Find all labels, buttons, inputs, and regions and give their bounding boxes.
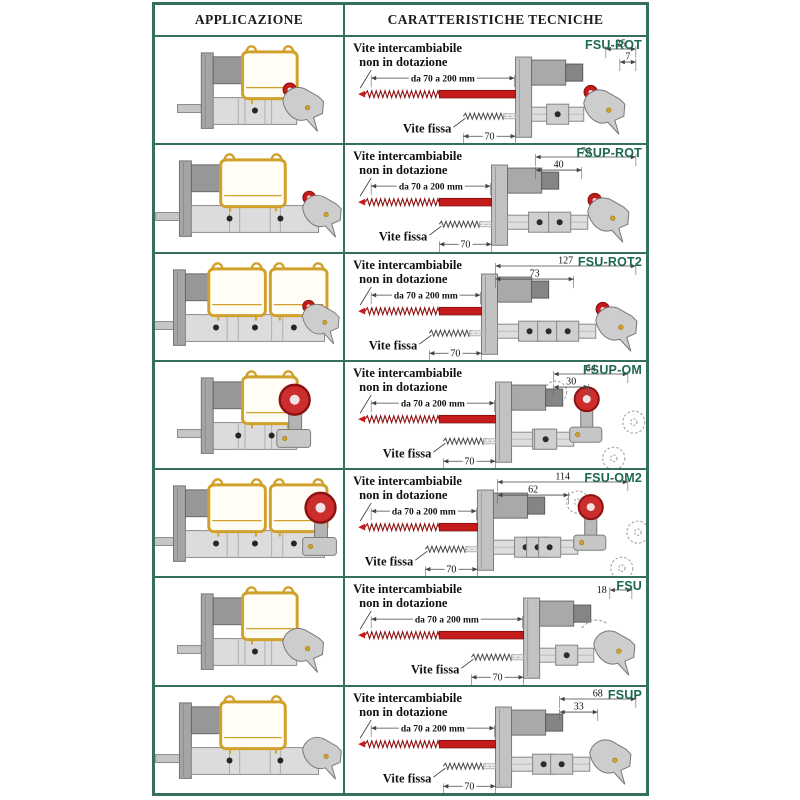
motor-body — [191, 165, 223, 192]
motor-body — [512, 385, 546, 410]
mount-plate — [481, 274, 497, 354]
product-code: FSU-ROT — [585, 38, 642, 52]
bolt — [564, 653, 570, 659]
caratteristiche-header: CARATTERISTICHE TECNICHE — [343, 5, 646, 35]
hook — [590, 740, 631, 784]
rail-profile — [209, 485, 266, 532]
rail-profile — [221, 160, 286, 207]
leader-line — [429, 226, 441, 235]
hook — [584, 90, 625, 134]
leader-line — [419, 335, 431, 344]
actuator-body — [191, 206, 318, 233]
bolt — [227, 216, 233, 222]
technical-cell: FSU-OM2 Vite intercambiabilenon in dotaz… — [343, 470, 646, 576]
interchangeable-screw-shaft — [439, 415, 495, 423]
dimension-label: da 70 a 200 mm — [415, 616, 479, 626]
motor-cap — [566, 64, 583, 81]
mount-plate — [201, 53, 213, 128]
rail-profile — [221, 702, 286, 749]
actuator-body — [191, 747, 318, 774]
application-illustration — [155, 687, 343, 793]
application-illustration — [155, 37, 343, 143]
bolt — [277, 757, 283, 763]
interchangeable-screw-label: non in dotazione — [359, 272, 448, 286]
leader-line — [433, 768, 445, 777]
motor-body — [213, 382, 245, 409]
interchangeable-screw-thread — [365, 199, 440, 206]
dimension-label: 70 — [450, 348, 460, 359]
mount-plate — [201, 594, 213, 669]
product-code: FSU-ROT2 — [578, 255, 642, 269]
hook — [594, 631, 635, 675]
leader-line — [360, 503, 371, 521]
application-cell — [155, 254, 343, 360]
fixed-screw-label: Vite fissa — [369, 338, 418, 352]
technical-cell: FSUP-OM Vite intercambiabilenon in dotaz… — [343, 362, 646, 468]
gear-outline — [603, 447, 625, 468]
mount-plate — [491, 165, 507, 245]
mount-plate — [179, 161, 191, 236]
dimension-label: 40 — [554, 160, 564, 171]
bolt — [557, 219, 563, 225]
dimension-label: 70 — [460, 240, 470, 251]
bolt — [541, 761, 547, 767]
bolt — [291, 324, 297, 330]
hook-assembly — [596, 302, 637, 351]
mount-plate — [179, 703, 191, 778]
screw-shaft — [156, 754, 180, 762]
dimension-label: da 70 a 200 mm — [401, 399, 465, 409]
motor-cap — [546, 714, 563, 731]
fixed-screw-label: Vite fissa — [383, 446, 432, 460]
dimension-label: 127 — [558, 255, 573, 266]
leader-line — [360, 178, 371, 196]
mount-plate — [496, 382, 512, 462]
dimension-label: 70 — [492, 673, 502, 684]
interchangeable-screw-label: Vite intercambiabile — [353, 474, 462, 488]
gear-outline — [627, 521, 646, 543]
fixed-screw-label: Vite fissa — [365, 554, 414, 568]
interchangeable-screw-label: Vite intercambiabile — [353, 41, 462, 55]
applicazione-header: APPLICAZIONE — [155, 5, 343, 35]
mount-plate — [174, 269, 186, 344]
leader-line — [461, 660, 473, 669]
technical-cell: FSUP-ROT Vite intercambiabilenon in dota… — [343, 145, 646, 251]
bolt — [277, 216, 283, 222]
bolt — [543, 436, 549, 442]
interchangeable-screw-shaft — [439, 307, 481, 315]
technical-cell: FSUP Vite intercambiabilenon in dotazion… — [343, 687, 646, 793]
product-code: FSU — [616, 579, 642, 593]
hook-assembly — [590, 740, 631, 784]
dimension-label: 7 — [625, 52, 630, 63]
leader-line — [453, 118, 465, 127]
application-cell — [155, 362, 343, 468]
table-row: FSU Vite intercambiabilenon in dotazione… — [155, 578, 646, 686]
mount-plate — [174, 486, 186, 561]
technical-drawing: Vite intercambiabilenon in dotazioneda 7… — [345, 254, 646, 360]
interchangeable-screw-label: non in dotazione — [359, 380, 448, 394]
dimension-label: 62 — [528, 485, 538, 496]
dimension-label: da 70 a 200 mm — [401, 724, 465, 734]
motor-body — [493, 493, 527, 518]
dimension-label: 68 — [593, 688, 603, 699]
interchangeable-screw-label: Vite intercambiabile — [353, 149, 462, 163]
fixed-screw-label: Vite fissa — [383, 771, 432, 785]
product-code: FSU-OM2 — [584, 471, 642, 485]
dimension-label: 33 — [574, 701, 584, 712]
table-row: FSU-OM2 Vite intercambiabilenon in dotaz… — [155, 470, 646, 578]
bolt — [213, 541, 219, 547]
interchangeable-screw-label: Vite intercambiabile — [353, 366, 462, 380]
bolt — [546, 328, 552, 334]
technical-cell: FSU Vite intercambiabilenon in dotazione… — [343, 578, 646, 684]
motor-body — [508, 168, 542, 193]
motor-body — [512, 710, 546, 735]
fixed-screw-thread — [429, 330, 471, 336]
interchangeable-screw-thread — [365, 524, 440, 531]
fixed-screw-thread — [471, 655, 513, 661]
catalog-page: APPLICAZIONE CARATTERISTICHE TECNICHE FS… — [0, 0, 800, 800]
screw-shaft — [177, 646, 201, 654]
motor-body — [213, 598, 245, 625]
bolt — [252, 108, 258, 114]
gear-outline — [611, 557, 633, 576]
bolt — [252, 541, 258, 547]
bolt — [252, 649, 258, 655]
table-row: FSUP-OM Vite intercambiabilenon in dotaz… — [155, 362, 646, 470]
motor-body — [213, 57, 245, 84]
dimension-label: 70 — [464, 781, 474, 792]
interchangeable-screw-thread — [365, 416, 440, 423]
dimension-label: 70 — [464, 456, 474, 467]
leader-line — [360, 720, 371, 738]
mount-plate — [524, 598, 540, 678]
dimension-label: 70 — [446, 565, 456, 576]
interchangeable-screw-shaft — [439, 632, 523, 640]
technical-cell: FSU-ROT Vite intercambiabilenon in dotaz… — [343, 37, 646, 143]
interchangeable-screw-shaft — [439, 523, 477, 531]
table-row: FSUP-ROT Vite intercambiabilenon in dota… — [155, 145, 646, 253]
interchangeable-screw-label: non in dotazione — [359, 163, 448, 177]
interchangeable-screw-label: Vite intercambiabile — [353, 691, 462, 705]
hook — [588, 198, 629, 242]
table-header: APPLICAZIONE CARATTERISTICHE TECNICHE — [155, 5, 646, 37]
hook — [596, 306, 637, 350]
dimension-label: da 70 a 200 mm — [411, 74, 475, 84]
application-illustration — [155, 362, 343, 468]
product-code: FSUP-ROT — [577, 146, 643, 160]
motor-cap — [574, 605, 591, 622]
dimension-label: 73 — [530, 268, 540, 279]
bolt — [235, 432, 241, 438]
mount-plate — [496, 707, 512, 787]
bolt — [565, 328, 571, 334]
motor-body — [540, 601, 574, 626]
technical-table: APPLICAZIONE CARATTERISTICHE TECNICHE FS… — [152, 2, 649, 796]
interchangeable-screw-label: non in dotazione — [359, 705, 448, 719]
application-cell — [155, 37, 343, 143]
dimension-label: 114 — [555, 472, 570, 483]
leader-line — [360, 287, 371, 305]
interchangeable-screw-label: non in dotazione — [359, 488, 448, 502]
bolt — [559, 761, 565, 767]
motor-cap — [542, 172, 559, 189]
mount-plate — [477, 490, 493, 570]
screw-shaft — [155, 321, 174, 329]
technical-drawing: Vite intercambiabilenon in dotazioneda 7… — [345, 145, 646, 251]
fixed-screw-label: Vite fissa — [403, 121, 452, 135]
screw-shaft — [177, 105, 201, 113]
bolt — [555, 111, 561, 117]
leader-line — [433, 443, 445, 452]
application-illustration — [155, 145, 343, 251]
interchangeable-screw-label: Vite intercambiabile — [353, 258, 462, 272]
dimension-label: 30 — [566, 376, 576, 387]
application-cell — [155, 145, 343, 251]
table-row: FSU-ROT Vite intercambiabilenon in dotaz… — [155, 37, 646, 145]
fixed-screw-thread — [463, 113, 505, 119]
technical-drawing: Vite intercambiabilenon in dotazioneda 7… — [345, 37, 646, 143]
leader-line — [360, 395, 371, 413]
hook-assembly — [594, 631, 635, 675]
application-illustration — [155, 578, 343, 684]
table-row: FSUP Vite intercambiabilenon in dotazion… — [155, 687, 646, 793]
bolt — [213, 324, 219, 330]
dimension-label: da 70 a 200 mm — [394, 291, 458, 301]
technical-drawing: Vite intercambiabilenon in dotazioneda 7… — [345, 578, 646, 684]
mount-plate — [516, 57, 532, 137]
interchangeable-screw-thread — [365, 740, 440, 747]
dimension-label: da 70 a 200 mm — [392, 507, 456, 517]
motor-cap — [546, 389, 563, 406]
fixed-screw-thread — [439, 221, 481, 227]
bolt — [291, 541, 297, 547]
bolt — [252, 324, 258, 330]
technical-drawing: Vite intercambiabilenon in dotazioneda 7… — [345, 362, 646, 468]
screw-shaft — [155, 538, 174, 546]
interchangeable-screw-label: non in dotazione — [359, 596, 448, 610]
application-cell — [155, 687, 343, 793]
motor-cap — [532, 281, 549, 298]
interchangeable-screw-thread — [365, 307, 440, 314]
gear-outline — [623, 411, 645, 433]
fixed-screw-thread — [443, 438, 485, 444]
application-illustration — [155, 254, 343, 360]
interchangeable-screw-thread — [365, 632, 440, 639]
fixed-screw-label: Vite fissa — [379, 230, 428, 244]
screw-shaft — [156, 213, 180, 221]
dimension-label: 18 — [597, 586, 607, 597]
motor-cap — [528, 497, 545, 514]
product-code: FSUP-OM — [583, 363, 642, 377]
fixed-screw-label: Vite fissa — [411, 663, 460, 677]
motor-body — [532, 60, 566, 85]
table-row: FSU-ROT2 Vite intercambiabilenon in dota… — [155, 254, 646, 362]
bolt — [547, 544, 553, 550]
interchangeable-screw-shaft — [439, 199, 491, 207]
screw-shaft — [177, 429, 201, 437]
motor-body — [191, 707, 223, 734]
motor-body — [498, 277, 532, 302]
interchangeable-screw-shaft — [439, 90, 515, 98]
application-cell — [155, 578, 343, 684]
bolt — [527, 328, 533, 334]
bolt — [269, 432, 275, 438]
leader-line — [360, 611, 371, 629]
wheel-assembly — [570, 387, 602, 442]
leader-line — [415, 551, 427, 560]
application-illustration — [155, 470, 343, 576]
dimension-label: da 70 a 200 mm — [399, 183, 463, 193]
wheel-assembly — [574, 495, 606, 550]
leader-line — [360, 70, 371, 88]
technical-drawing: Vite intercambiabilenon in dotazioneda 7… — [345, 470, 646, 576]
fixed-screw-thread — [425, 546, 467, 552]
interchangeable-screw-label: non in dotazione — [359, 55, 448, 69]
fixed-screw-thread — [443, 763, 485, 769]
interchangeable-screw-shaft — [439, 740, 495, 748]
application-cell — [155, 470, 343, 576]
product-code: FSUP — [608, 688, 642, 702]
technical-cell: FSU-ROT2 Vite intercambiabilenon in dota… — [343, 254, 646, 360]
technical-drawing: Vite intercambiabilenon in dotazioneda 7… — [345, 687, 646, 793]
bolt — [227, 757, 233, 763]
hook-assembly — [588, 194, 629, 243]
bolt — [537, 219, 543, 225]
interchangeable-screw-thread — [365, 91, 440, 98]
mount-plate — [201, 378, 213, 453]
table-body: FSU-ROT Vite intercambiabilenon in dotaz… — [155, 37, 646, 793]
interchangeable-screw-label: Vite intercambiabile — [353, 582, 462, 596]
dimension-label: 70 — [484, 131, 494, 142]
hook-assembly — [584, 86, 625, 135]
rail-profile — [209, 268, 266, 315]
